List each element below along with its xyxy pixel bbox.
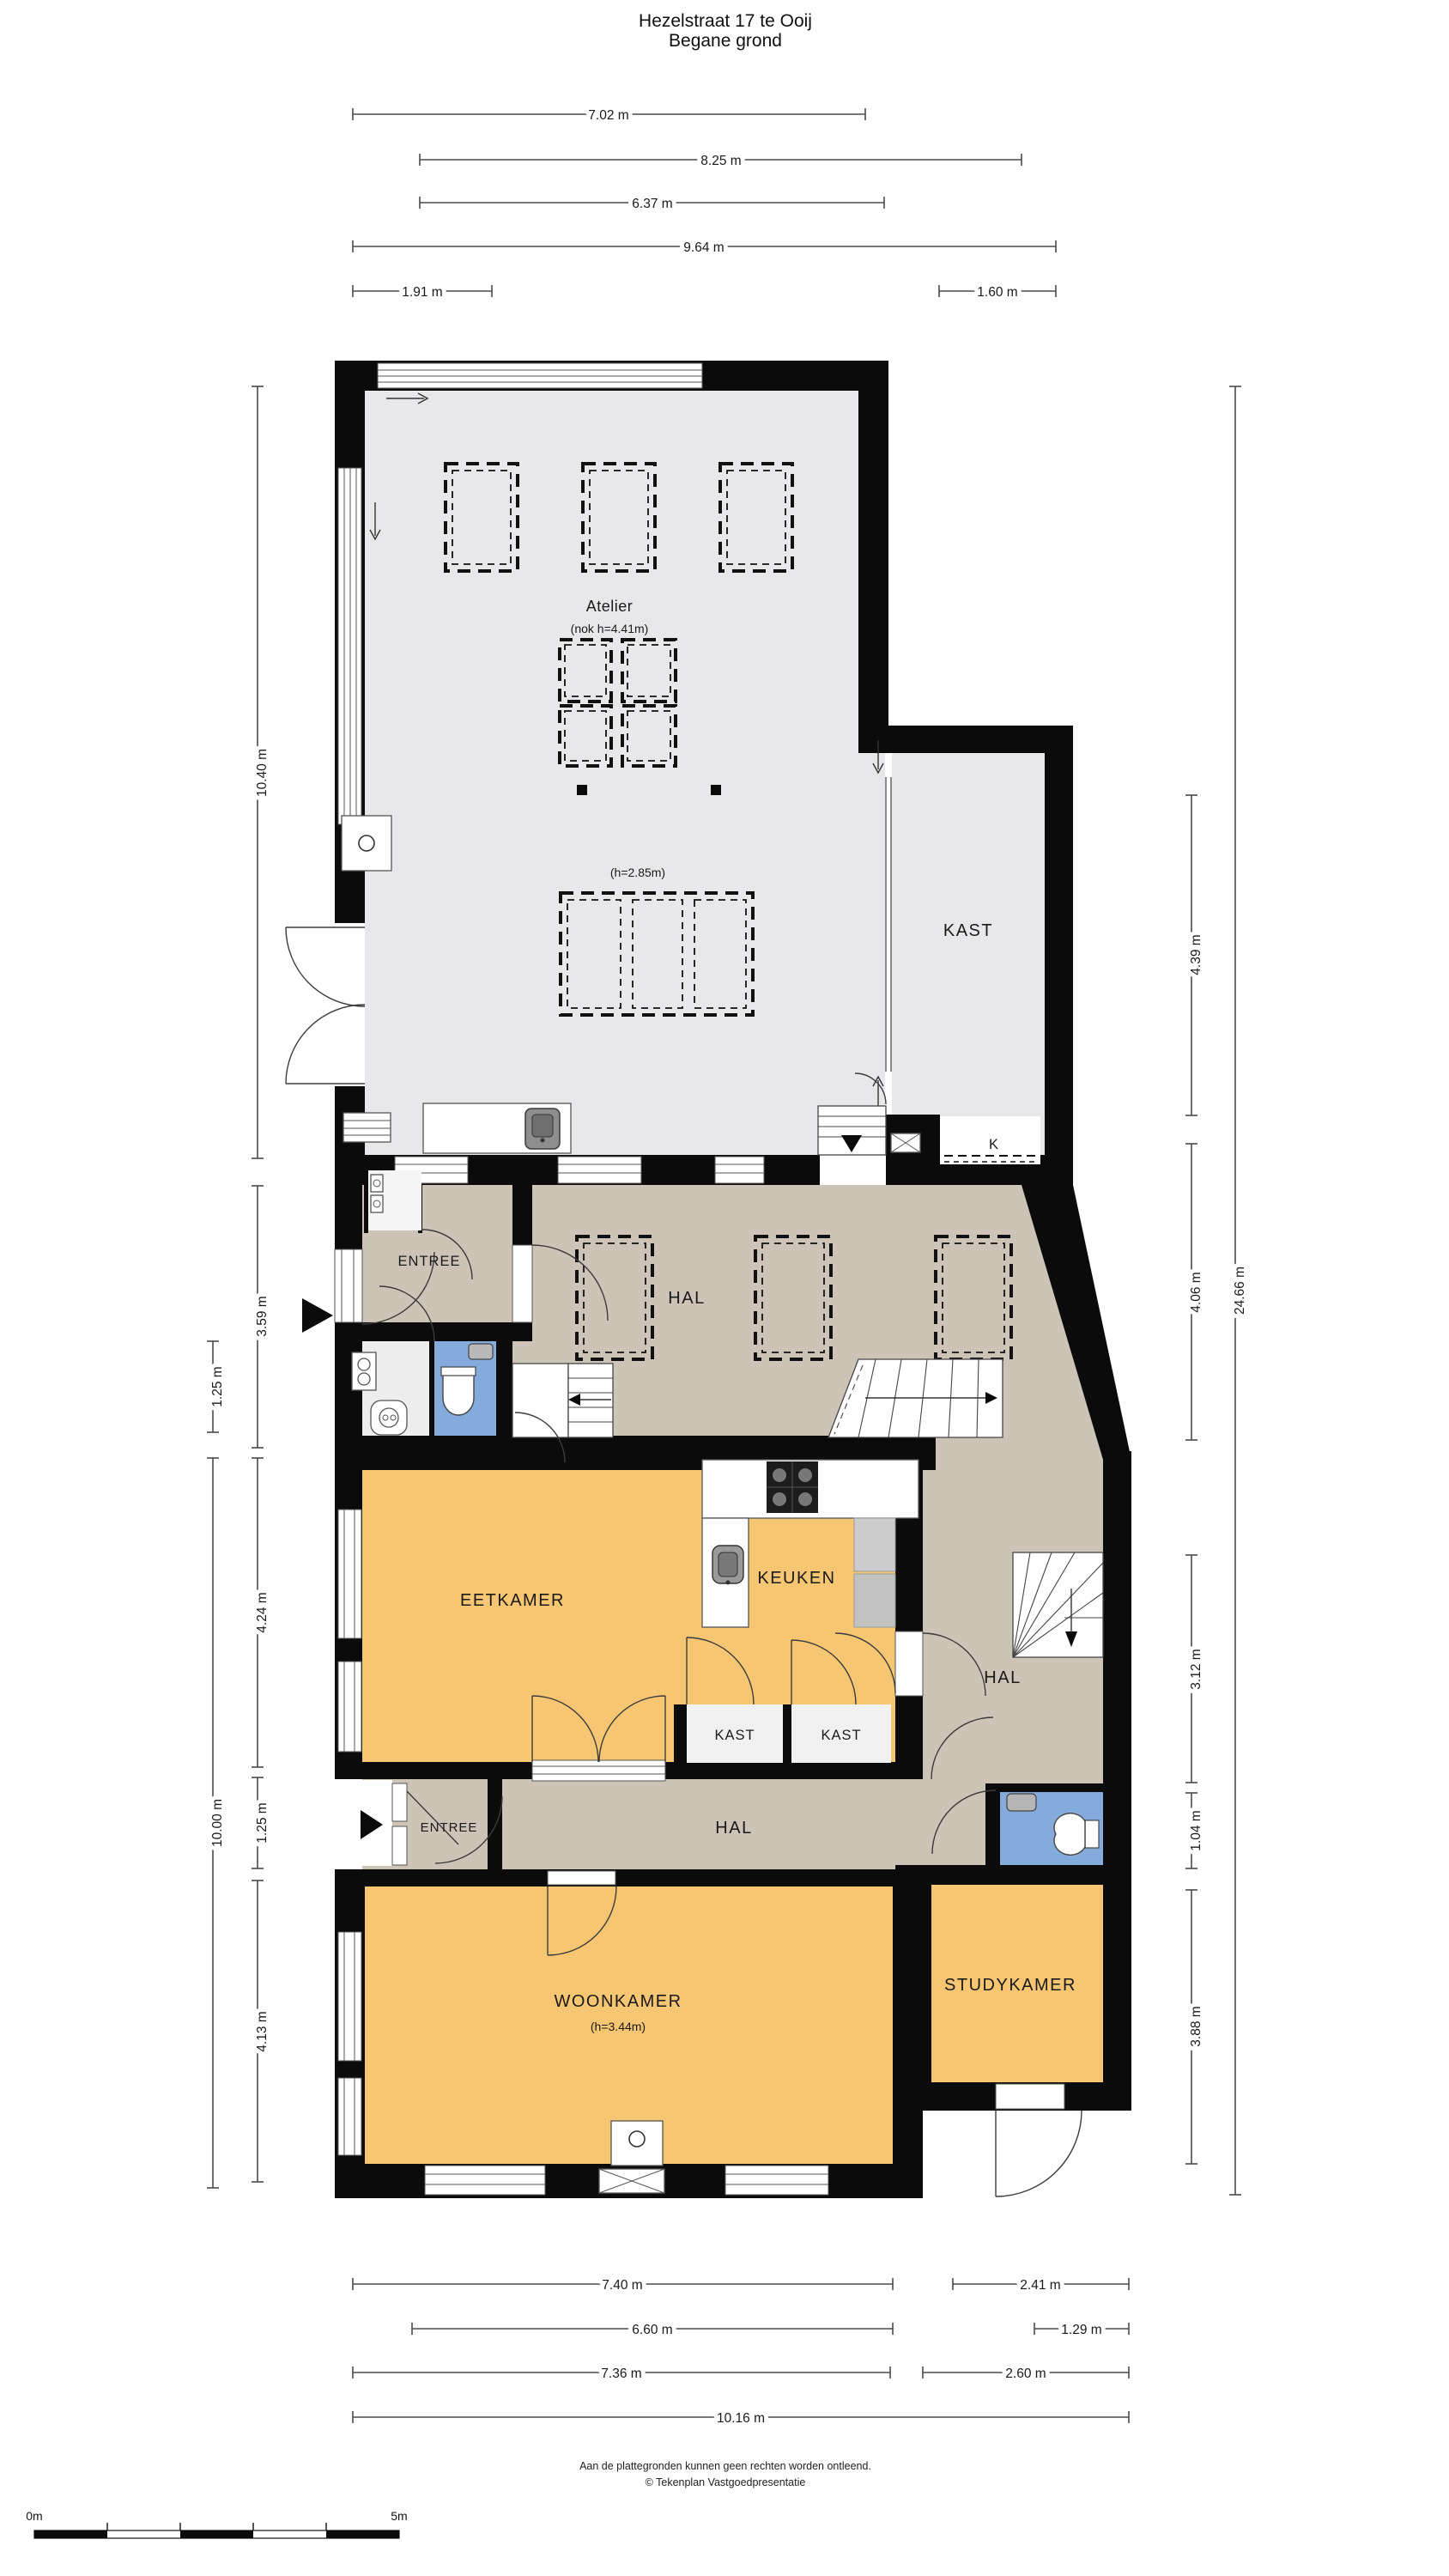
toilet1-bowl-icon [443, 1372, 474, 1415]
dim-right-5: 3.88 m [1189, 2006, 1203, 2046]
door-hal2-woonkamer [548, 1871, 615, 1885]
label-hal-mid: HAL [668, 1289, 705, 1308]
dimensions-top: 7.02 m 8.25 m 6.37 m 9.64 m 1.91 m 1.60 … [353, 108, 1056, 300]
label-kast1: KAST [714, 1728, 755, 1743]
label-atelier-nok: (nok h=4.41m) [571, 622, 649, 635]
floorplan-canvas: Hezelstraat 17 te Ooij Begane grond [0, 0, 1449, 2576]
dim-bottom-4: 1.29 m [1061, 2323, 1101, 2337]
label-woonkamer: WOONKAMER [554, 1992, 682, 2011]
dim-right-1: 4.39 m [1189, 934, 1203, 975]
fireplace-icon [611, 2121, 663, 2166]
boiler-unit-icon [342, 816, 391, 871]
dim-left-7: 4.13 m [255, 2011, 270, 2051]
dim-bottom-2: 2.41 m [1020, 2278, 1060, 2293]
window-woonkamer-bottom-2 [725, 2166, 828, 2195]
title-line1: Hezelstraat 17 te Ooij [639, 11, 812, 31]
label-atelier-h: (h=2.85m) [610, 866, 665, 879]
scale-start-label: 0m [26, 2509, 42, 2523]
entree2-frame-top [392, 1783, 407, 1821]
front-door1 [335, 1249, 362, 1322]
dim-left-6: 1.25 m [255, 1802, 270, 1843]
atelier-floor [365, 391, 885, 1155]
label-eetkamer: EETKAMER [460, 1591, 565, 1610]
label-k: K [989, 1137, 999, 1152]
fridge-icon [854, 1518, 895, 1571]
label-studykamer: STUDYKAMER [944, 1976, 1076, 1995]
dimensions-right: 4.39 m 4.06 m 3.12 m 1.04 m 3.88 m 24.66… [1185, 386, 1247, 2195]
window-woonkamer-left-1 [338, 1932, 361, 2061]
dim-bottom-5: 7.36 m [601, 2366, 641, 2381]
dim-top-6: 1.60 m [977, 285, 1017, 300]
label-keuken: KEUKEN [757, 1569, 835, 1588]
label-entree2: ENTREE [421, 1820, 478, 1835]
dim-right-3: 3.12 m [1189, 1649, 1203, 1689]
toilet2-sink-icon [1007, 1794, 1036, 1811]
footer: Aan de plattegronden kunnen geen rechten… [579, 2460, 871, 2488]
dim-left-5: 4.24 m [255, 1592, 270, 1632]
dim-top-1: 7.02 m [588, 108, 628, 123]
dim-right-6: 24.66 m [1233, 1267, 1247, 1315]
entrance1-arrow-icon [302, 1298, 333, 1333]
label-woonkamer-h: (h=3.44m) [591, 2020, 646, 2033]
window-woonkamer-left-2 [338, 2078, 361, 2155]
opening-eetkamer-hal2 [532, 1760, 665, 1781]
dim-top-5: 1.91 m [402, 285, 442, 300]
stair-opening [820, 1155, 886, 1185]
window-atelier-bottom-2 [558, 1157, 641, 1183]
kast-room-floor [892, 753, 1045, 1155]
dim-right-2: 4.06 m [1189, 1272, 1203, 1312]
window-eetkamer-2 [338, 1662, 361, 1752]
footer-line2: © Tekenplan Vastgoedpresentatie [646, 2476, 806, 2488]
toilet2-bowl-icon [1054, 1814, 1085, 1855]
winder-stairs [1013, 1552, 1103, 1657]
dim-right-4: 1.04 m [1189, 1810, 1203, 1850]
dim-top-2: 8.25 m [700, 154, 741, 168]
label-entree1: ENTREE [398, 1254, 461, 1269]
dimensions-left: 10.40 m 3.59 m 1.25 m 10.00 m 4.24 m 1.2… [207, 386, 270, 2188]
stair-vestibule [512, 1364, 568, 1437]
dim-left-2: 3.59 m [255, 1296, 270, 1336]
dimensions-bottom: 7.40 m 2.41 m 6.60 m 1.29 m 7.36 m 2.60 … [353, 2278, 1129, 2426]
page-title: Hezelstraat 17 te Ooij Begane grond [639, 11, 812, 51]
column [577, 785, 587, 795]
dim-bottom-7: 10.16 m [717, 2411, 765, 2426]
dim-bottom-3: 6.60 m [632, 2323, 672, 2337]
label-kast-room: KAST [943, 921, 993, 940]
dim-bottom-6: 2.60 m [1005, 2366, 1046, 2381]
door-entree-hal [512, 1245, 532, 1322]
dim-left-1: 10.40 m [255, 749, 270, 797]
window-atelier-bottom-3 [715, 1157, 764, 1183]
scale-end-label: 5m [391, 2509, 407, 2523]
dim-bottom-1: 7.40 m [602, 2278, 642, 2293]
title-line2: Begane grond [669, 31, 782, 51]
label-hal2: HAL [715, 1819, 752, 1838]
door-studykamer [996, 2084, 1064, 2109]
door-keuken-hal [895, 1631, 923, 1696]
oven-icon [854, 1574, 895, 1627]
dim-left-4: 10.00 m [210, 1799, 225, 1847]
toilet1-sink-icon [469, 1344, 493, 1359]
dim-top-3: 6.37 m [632, 197, 672, 211]
scale-bar: 0m 5m [26, 2509, 407, 2538]
label-hal-right: HAL [984, 1668, 1021, 1687]
grille-icon [343, 1113, 391, 1142]
dim-left-3: 1.25 m [210, 1366, 225, 1406]
window-eetkamer-1 [338, 1510, 361, 1638]
footer-line1: Aan de plattegronden kunnen geen rechten… [579, 2460, 871, 2472]
window-woonkamer-bottom-1 [425, 2166, 545, 2195]
column [711, 785, 721, 795]
label-atelier: Atelier [586, 598, 634, 615]
floors [362, 391, 1103, 2164]
dim-top-4: 9.64 m [683, 240, 724, 255]
boiler-icon [371, 1400, 407, 1435]
entree2-frame-bottom [392, 1826, 407, 1865]
label-kast2: KAST [821, 1728, 861, 1743]
